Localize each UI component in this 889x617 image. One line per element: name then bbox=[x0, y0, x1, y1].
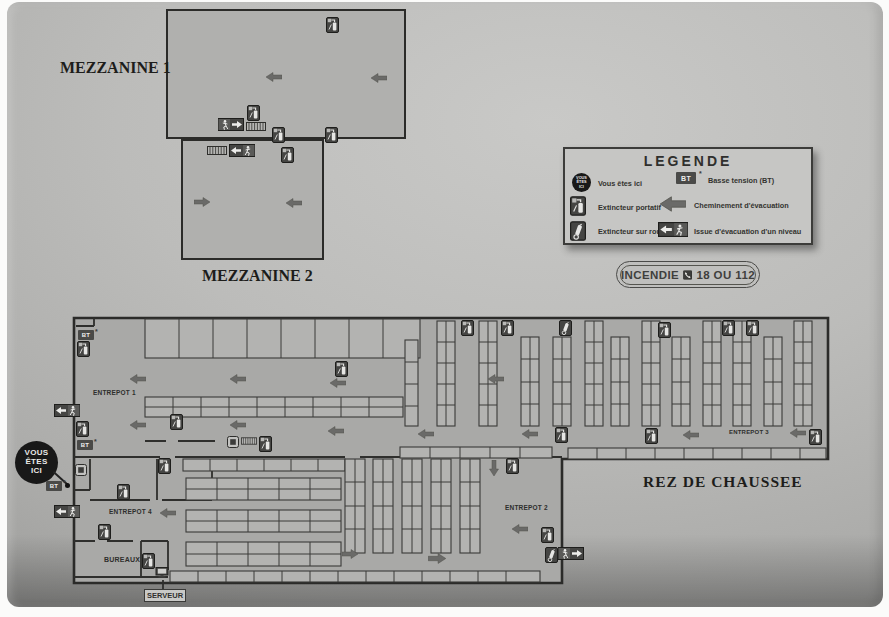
ground-floor-label: REZ DE CHAUSSEE bbox=[643, 473, 803, 491]
room-label-entrepot2: ENTREPOT 2 bbox=[505, 504, 548, 511]
room-label-entrepot1: ENTREPOT 1 bbox=[93, 389, 136, 396]
extinguisher-portable-icon bbox=[722, 320, 735, 336]
exit-left-icon bbox=[229, 144, 255, 157]
extinguisher-portable-icon bbox=[142, 553, 155, 569]
extinguisher-portable-icon bbox=[77, 341, 90, 357]
evacuation-arrow-left-icon bbox=[330, 378, 346, 388]
extinguisher-portable-icon bbox=[247, 105, 260, 121]
extinguisher-wheeled-icon bbox=[559, 320, 572, 336]
evacuation-arrow-right-icon bbox=[428, 553, 446, 564]
bt-asterisk: * bbox=[95, 328, 98, 335]
extinguisher-portable-icon bbox=[259, 436, 272, 452]
evacuation-arrow-left-icon bbox=[230, 374, 246, 384]
room-label-entrepot4: ENTREPOT 4 bbox=[109, 508, 152, 515]
level-exit-icon bbox=[658, 222, 688, 237]
evacuation-plan-photo: MEZZANINE 1 MEZZANINE 2 REZ DE CHAUSSEE … bbox=[0, 0, 889, 617]
you-are-here-marker: VOUS ÊTES ICI bbox=[15, 441, 58, 484]
extinguisher-wheeled-icon bbox=[570, 221, 586, 241]
evacuation-arrow-left-icon bbox=[522, 429, 538, 439]
extinguisher-portable-icon bbox=[809, 429, 822, 445]
bt-asterisk: * bbox=[63, 479, 66, 486]
extinguisher-portable-icon bbox=[325, 127, 338, 143]
exit-right-icon bbox=[218, 118, 244, 131]
evacuation-arrow-left-icon bbox=[371, 73, 387, 83]
extinguisher-portable-icon bbox=[326, 17, 339, 33]
evacuation-arrow-left-icon bbox=[130, 374, 146, 384]
extinguisher-portable-icon bbox=[541, 527, 554, 543]
fire-label: INCENDIE bbox=[621, 269, 679, 281]
extinguisher-wheeled-icon bbox=[545, 547, 558, 563]
evacuation-arrow-left-icon bbox=[160, 508, 176, 518]
evacuation-arrow-left-icon bbox=[266, 72, 282, 82]
evacuation-arrow-icon bbox=[660, 196, 686, 212]
emergency-call-badge: INCENDIE 18 OU 112 bbox=[616, 261, 760, 288]
extinguisher-portable-icon bbox=[570, 196, 586, 216]
bt-badge: BT bbox=[676, 172, 696, 184]
evacuation-arrow-left-icon bbox=[286, 198, 302, 208]
extinguisher-portable-icon bbox=[98, 524, 111, 540]
legend-title: LEGENDE bbox=[565, 153, 811, 169]
bt-badge: BT bbox=[46, 481, 62, 491]
evacuation-arrow-left-icon bbox=[683, 430, 699, 440]
evacuation-arrow-down-icon bbox=[489, 460, 499, 476]
evacuation-arrow-left-icon bbox=[488, 374, 504, 384]
mezzanine2-label: MEZZANINE 2 bbox=[202, 267, 313, 285]
extinguisher-portable-icon bbox=[158, 458, 171, 474]
mezzanine1-plan bbox=[166, 9, 406, 139]
extinguisher-portable-icon bbox=[555, 427, 568, 443]
extinguisher-portable-icon bbox=[170, 414, 183, 430]
extinguisher-portable-icon bbox=[272, 127, 285, 143]
evacuation-arrow-left-icon bbox=[418, 429, 434, 439]
extinguisher-portable-icon bbox=[658, 322, 671, 338]
bt-asterisk: * bbox=[94, 438, 97, 445]
stairs-icon bbox=[246, 122, 266, 131]
stairs-icon bbox=[207, 146, 227, 155]
mezzanine1-label: MEZZANINE 1 bbox=[60, 59, 171, 77]
legend-label: Cheminement d'évacuation bbox=[694, 201, 789, 210]
evacuation-arrow-left-icon bbox=[512, 524, 528, 534]
bt-badge: BT bbox=[78, 330, 94, 340]
legend-label: Vous êtes ici bbox=[598, 179, 642, 188]
bt-asterisk: * bbox=[699, 170, 702, 177]
extinguisher-portable-icon bbox=[746, 320, 759, 336]
legend-label: Issue d'évacuation d'un niveau bbox=[694, 227, 801, 236]
emergency-numbers: 18 OU 112 bbox=[696, 269, 755, 281]
stairs-icon bbox=[241, 437, 257, 445]
alarm-call-point-icon bbox=[75, 464, 87, 476]
legend-label: Basse tension (BT) bbox=[708, 176, 774, 185]
extinguisher-portable-icon bbox=[461, 320, 474, 336]
evacuation-arrow-left-icon bbox=[230, 420, 246, 430]
server-monitor-icon bbox=[155, 567, 169, 578]
extinguisher-portable-icon bbox=[501, 320, 514, 336]
exit-right-icon bbox=[558, 547, 584, 560]
legend-label: Extincteur portatif bbox=[598, 203, 661, 212]
room-label-bureaux: BUREAUX bbox=[104, 556, 140, 563]
alarm-call-point-icon bbox=[227, 436, 239, 448]
evacuation-arrow-left-icon bbox=[328, 426, 344, 436]
bt-badge: BT bbox=[77, 440, 93, 450]
evacuation-arrow-left-icon bbox=[790, 428, 806, 438]
exit-left-icon bbox=[54, 404, 80, 417]
extinguisher-portable-icon bbox=[506, 458, 519, 474]
extinguisher-portable-icon bbox=[335, 361, 348, 377]
evacuation-arrow-left-icon bbox=[130, 420, 146, 430]
you-are-here-marker: VOUS ÊTES ICI bbox=[572, 173, 591, 192]
evacuation-arrow-right-icon bbox=[342, 549, 358, 559]
room-label-entrepot3: ENTREPOT 3 bbox=[729, 429, 769, 435]
ground-floor-plan-drawing bbox=[0, 0, 889, 617]
emergency-call-inner: INCENDIE 18 OU 112 bbox=[620, 265, 756, 285]
extinguisher-portable-icon bbox=[645, 428, 658, 444]
evacuation-arrow-right-icon bbox=[194, 197, 210, 207]
extinguisher-portable-icon bbox=[281, 147, 294, 163]
extinguisher-portable-icon bbox=[76, 421, 89, 437]
extinguisher-portable-icon bbox=[117, 484, 130, 500]
phone-icon bbox=[683, 266, 692, 284]
exit-left-icon bbox=[54, 505, 80, 518]
room-label-serveur: SERVEUR bbox=[144, 589, 186, 602]
